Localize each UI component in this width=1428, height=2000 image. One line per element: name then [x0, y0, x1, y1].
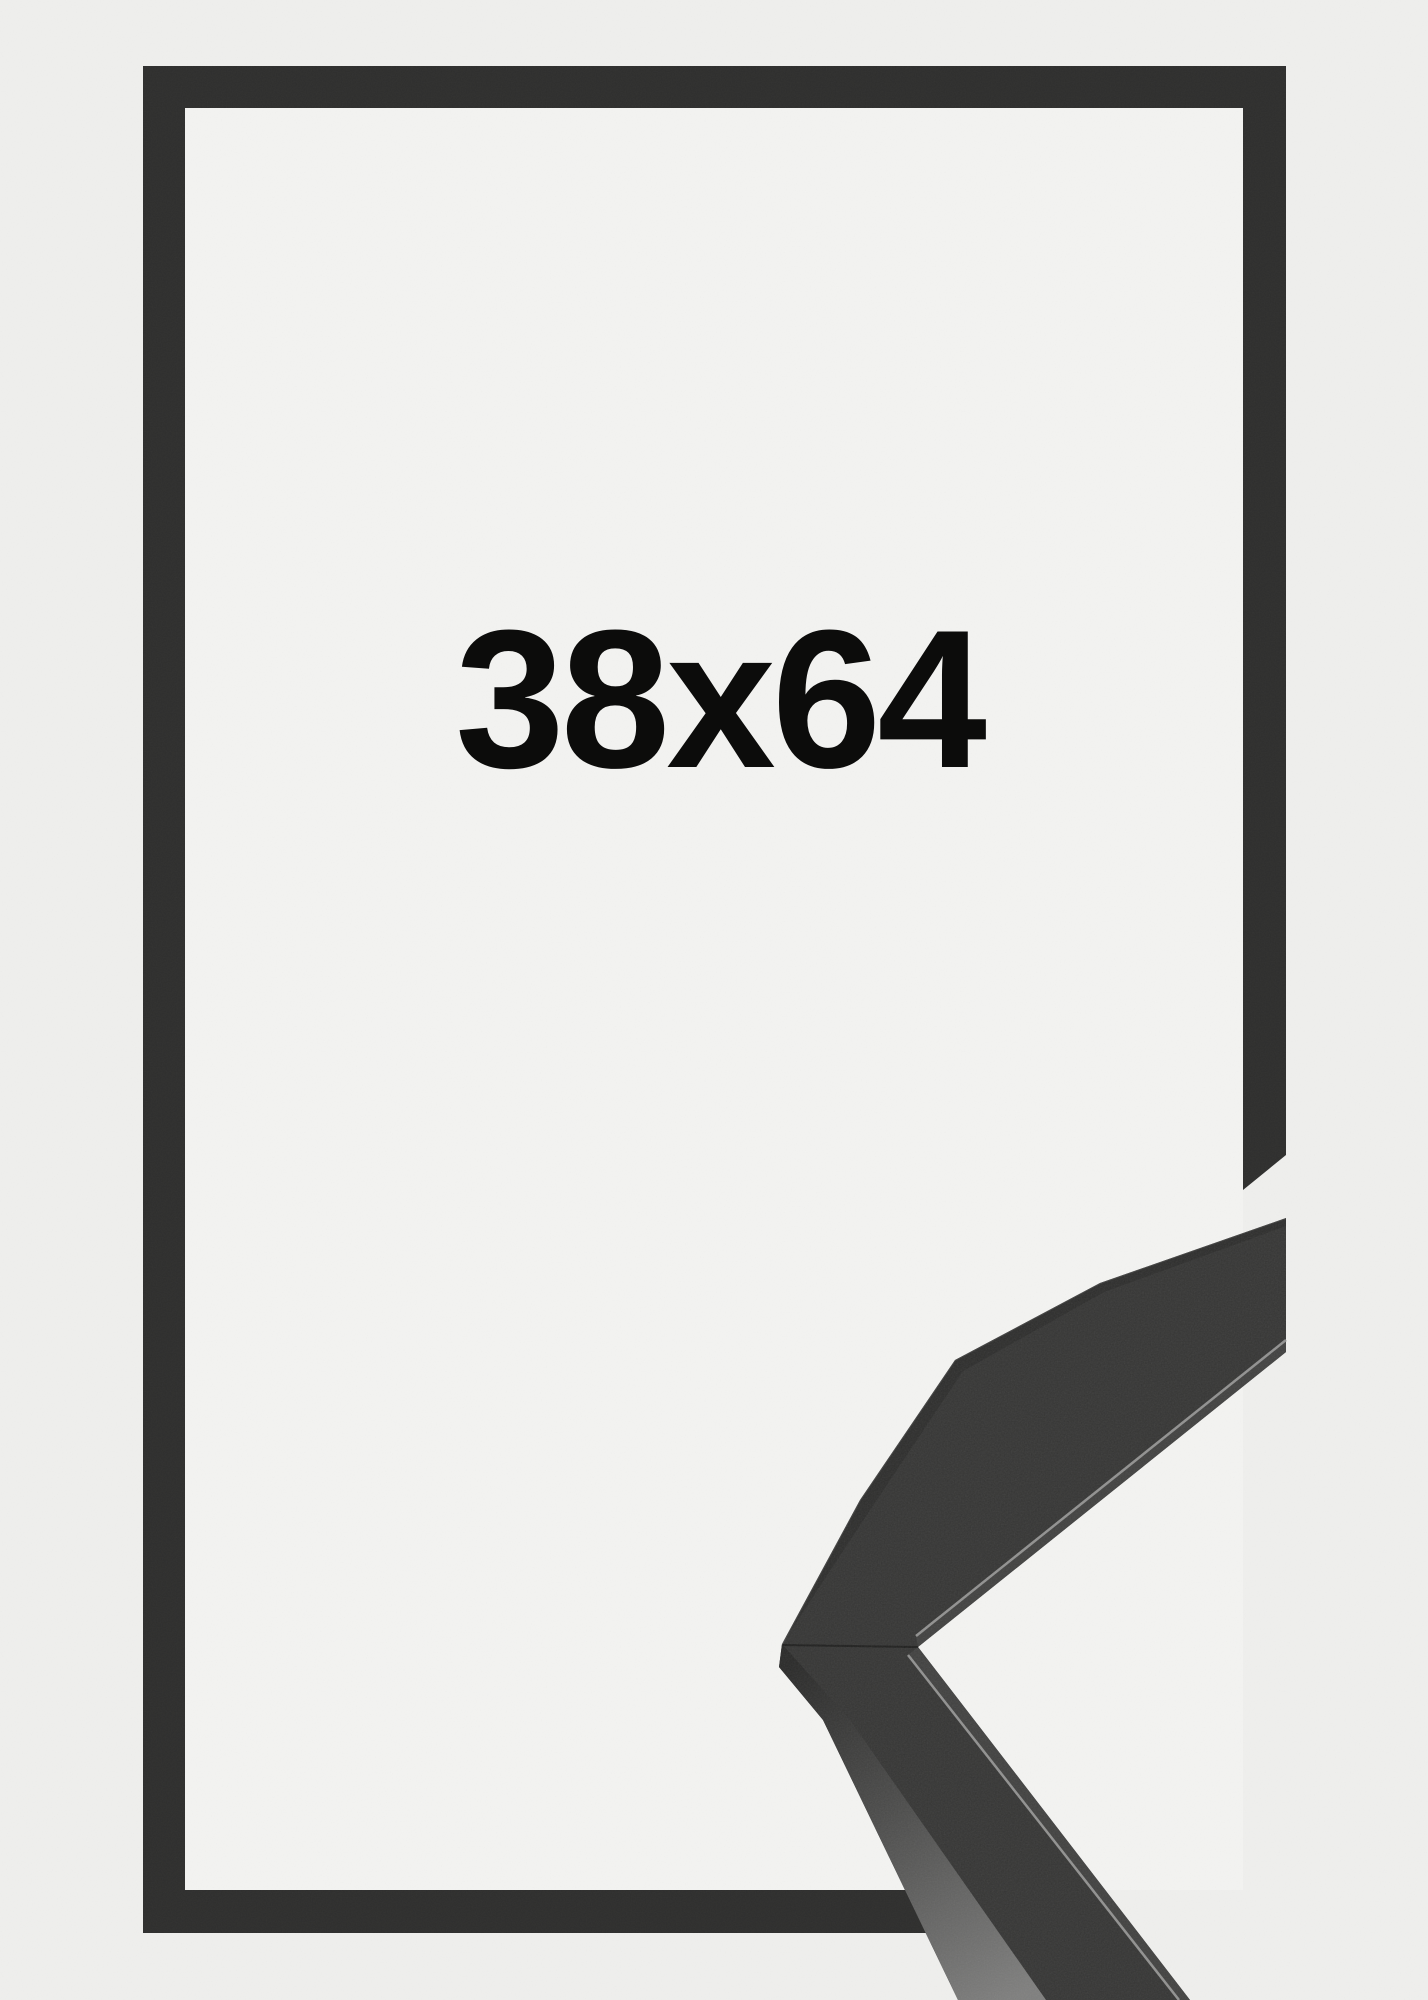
photo-grain-texture	[0, 0, 1428, 2000]
product-image: 38x64	[0, 0, 1428, 2000]
frame-artwork	[0, 0, 1428, 2000]
